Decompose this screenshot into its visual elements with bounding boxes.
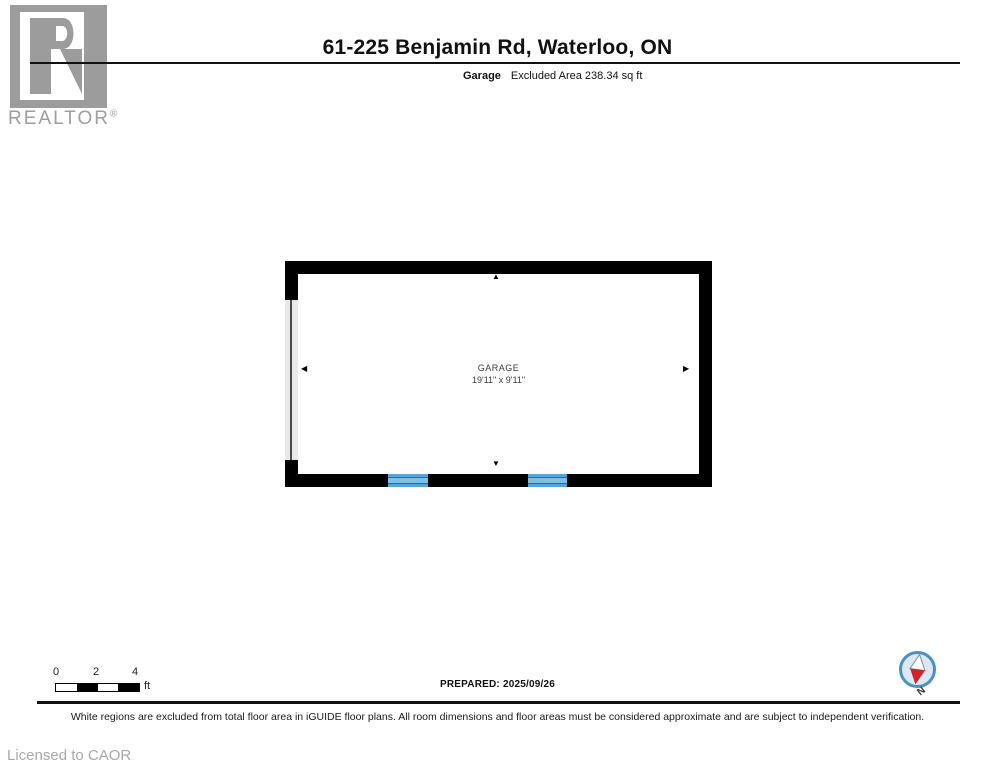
- arrow-down-icon: ▼: [492, 460, 500, 468]
- scale-tick-0: 0: [53, 666, 59, 678]
- window-bottom-left: [388, 474, 428, 487]
- scale-tick-2: 2: [93, 666, 99, 678]
- window-bottom-right: [528, 474, 567, 487]
- room-name: GARAGE: [478, 363, 520, 373]
- floor-plan: GARAGE 19'11" x 9'11" ▲ ▼ ◀ ▶: [285, 261, 712, 487]
- license-text: Licensed to CAOR: [7, 747, 131, 764]
- brand-text: REALTOR: [8, 108, 110, 129]
- prepared-value: 2025/09/26: [503, 679, 555, 690]
- realtor-logo-r-icon: [20, 12, 84, 100]
- floor-subtitle: GarageExcluded Area 238.34 sq ft: [463, 70, 642, 82]
- page-title: 61-225 Benjamin Rd, Waterloo, ON: [0, 36, 995, 60]
- floor-label: Garage: [463, 70, 501, 82]
- arrow-right-icon: ▶: [683, 365, 689, 373]
- garage-door: [285, 300, 298, 460]
- room-dimensions: 19'11" x 9'11": [472, 375, 525, 385]
- compass-icon: [897, 649, 938, 690]
- prepared-label: PREPARED:: [440, 679, 500, 690]
- garage-door-line: [290, 300, 292, 460]
- room-label: GARAGE 19'11" x 9'11": [298, 274, 699, 474]
- arrow-left-icon: ◀: [301, 365, 307, 373]
- disclaimer-text: White regions are excluded from total fl…: [0, 711, 995, 723]
- scale-tick-4: 4: [132, 666, 138, 678]
- footer-divider: [37, 701, 960, 704]
- prepared-date: PREPARED: 2025/09/26: [0, 679, 995, 690]
- realtor-wordmark: REALTOR®: [8, 108, 117, 130]
- arrow-up-icon: ▲: [492, 273, 500, 281]
- realtor-logo: [10, 5, 107, 108]
- header-divider: [30, 62, 960, 64]
- registered-mark: ®: [110, 109, 117, 120]
- excluded-area-note: Excluded Area 238.34 sq ft: [511, 70, 642, 82]
